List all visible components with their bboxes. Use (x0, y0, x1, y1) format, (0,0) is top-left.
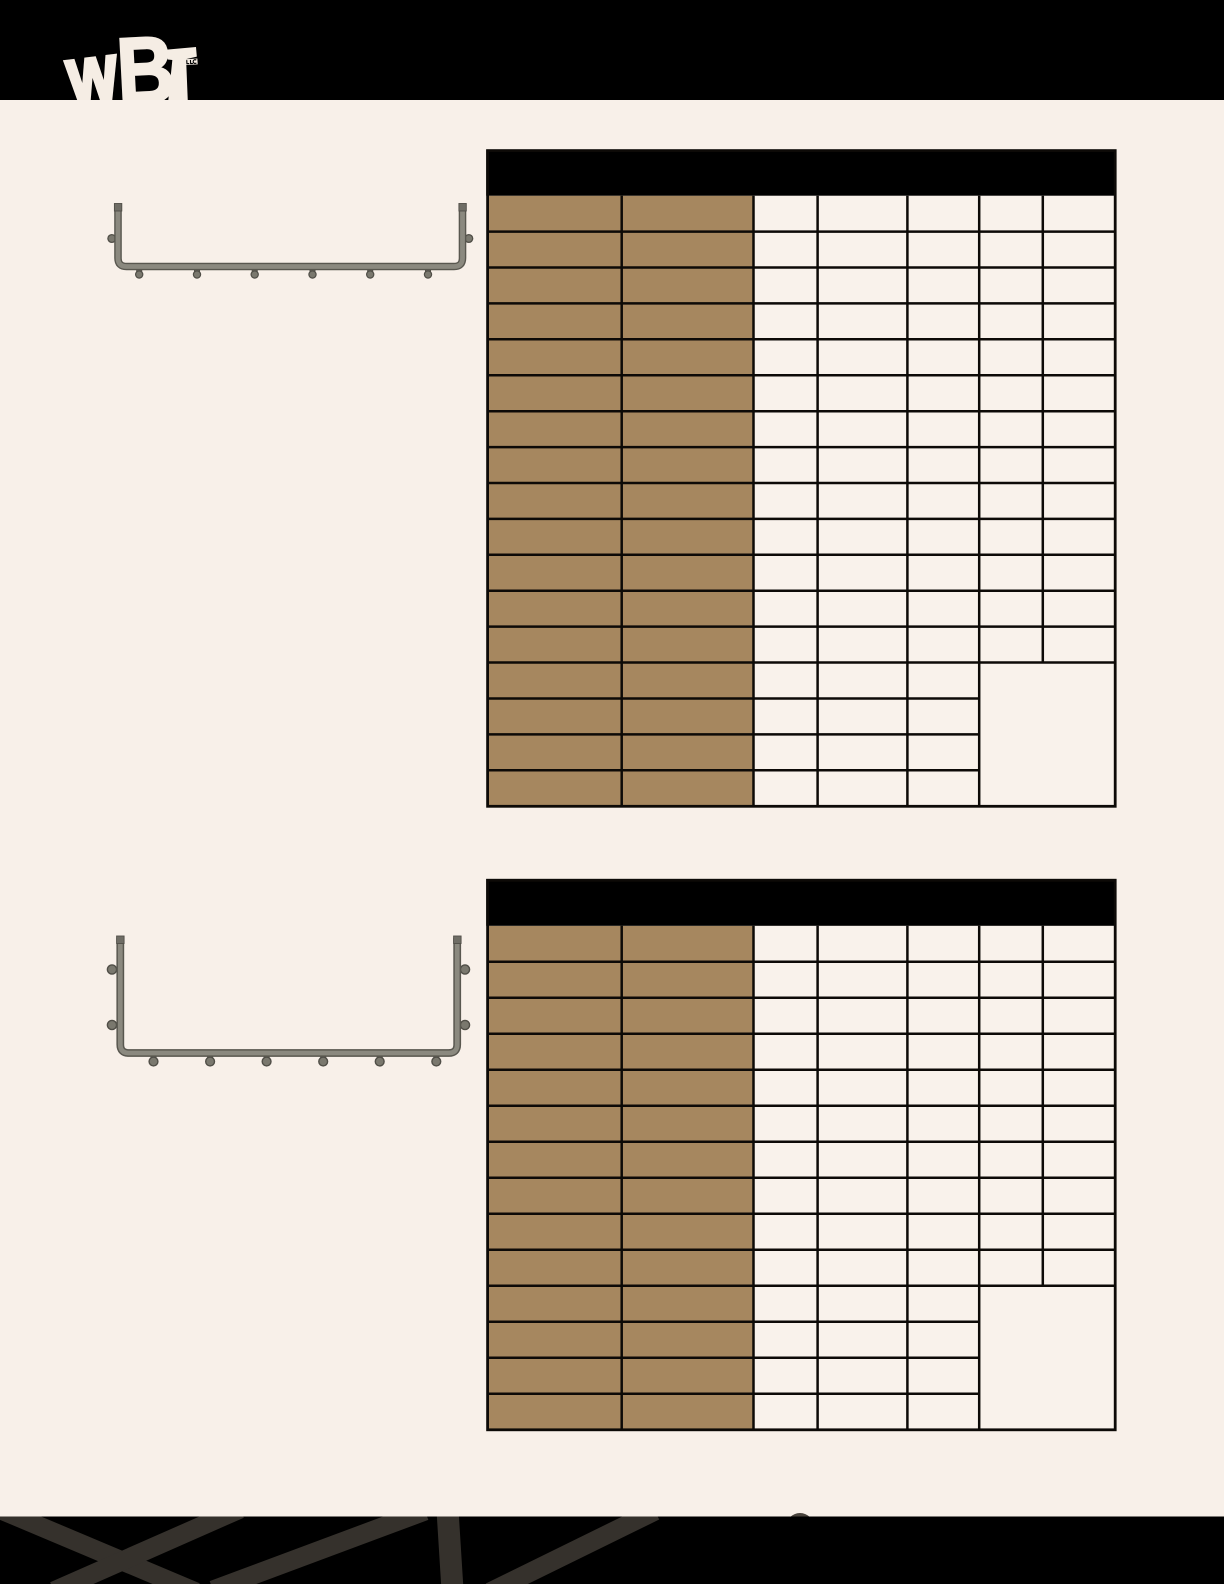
svg-text:W: W (64, 43, 122, 100)
